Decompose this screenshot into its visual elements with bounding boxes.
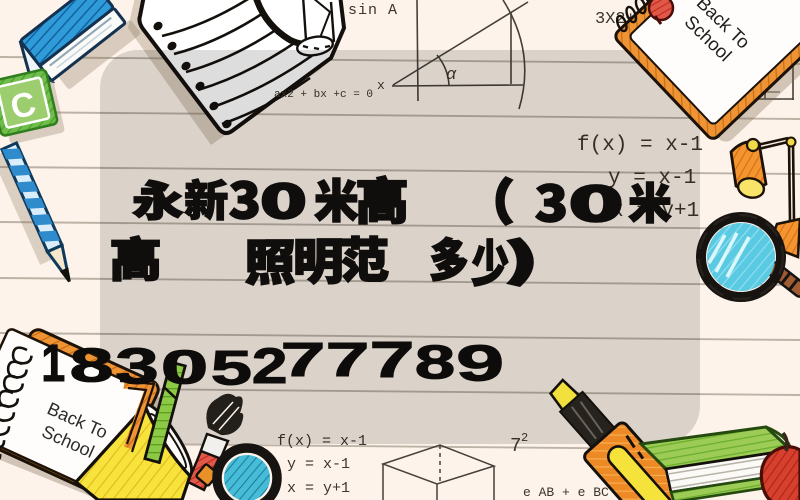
svg-text:y = x-1: y = x-1 (287, 456, 350, 473)
svg-text:sin A: sin A (348, 2, 398, 19)
svg-text:x = y+1: x = y+1 (287, 480, 350, 497)
